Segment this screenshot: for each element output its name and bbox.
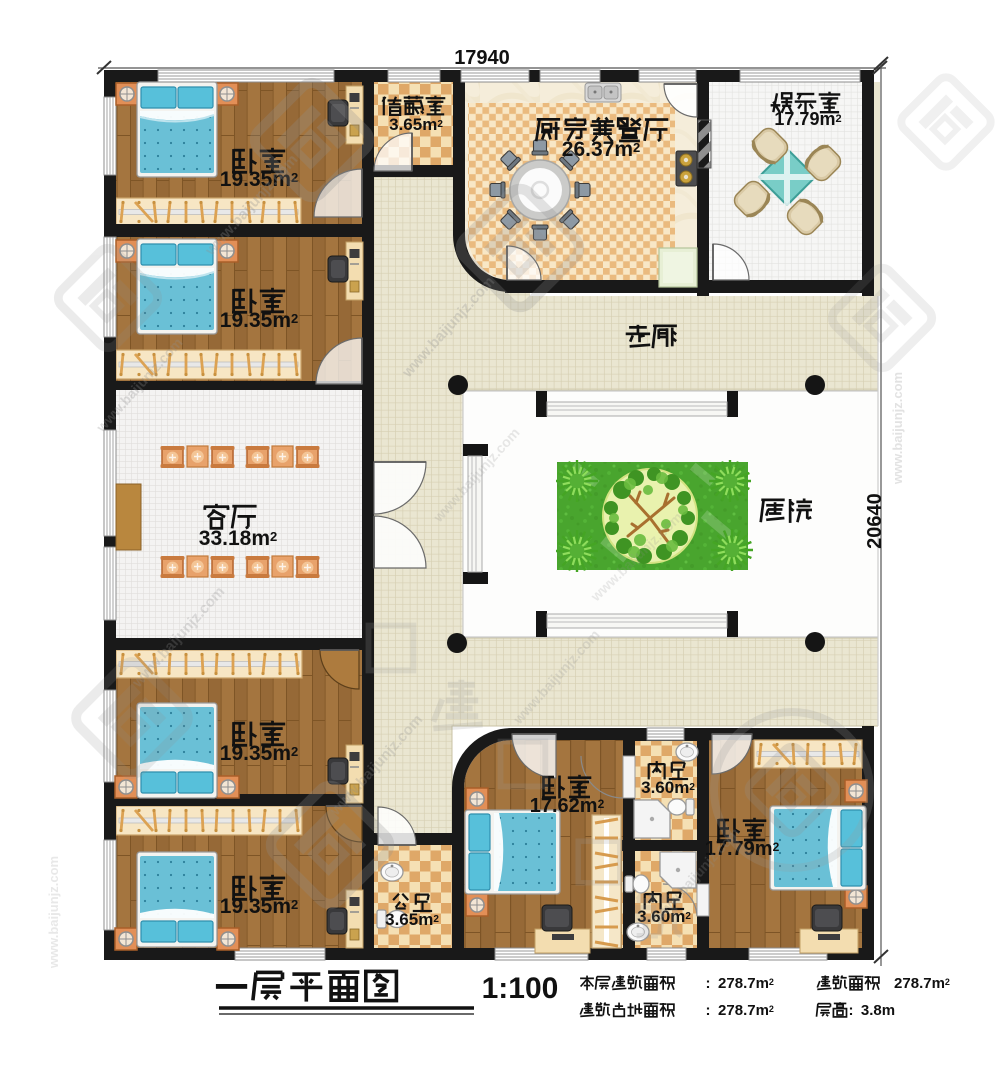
- svg-text:17940: 17940: [454, 47, 510, 69]
- svg-text:33.18m2: 33.18m2: [199, 527, 277, 550]
- svg-text:20640: 20640: [864, 493, 886, 549]
- svg-text::: :: [706, 1002, 711, 1019]
- svg-text:3.65m2: 3.65m2: [385, 910, 439, 929]
- svg-text::: :: [849, 1002, 854, 1019]
- svg-text:19.35m2: 19.35m2: [220, 742, 298, 765]
- svg-text:278.7m2: 278.7m2: [718, 1002, 774, 1019]
- svg-text:19.35m2: 19.35m2: [220, 309, 298, 332]
- svg-text:3.8m: 3.8m: [861, 1002, 895, 1019]
- svg-text:17.62m2: 17.62m2: [530, 795, 605, 817]
- svg-text:3.65m2: 3.65m2: [389, 115, 443, 134]
- svg-text::: :: [706, 975, 711, 992]
- svg-text:www.baijunjz.com: www.baijunjz.com: [890, 372, 905, 485]
- svg-text:1:100: 1:100: [482, 972, 559, 1005]
- svg-text:17.79m2: 17.79m2: [774, 109, 841, 129]
- svg-text:278.7m2: 278.7m2: [894, 975, 950, 992]
- svg-text:www.baijunjz.com: www.baijunjz.com: [46, 856, 61, 969]
- svg-text:19.35m2: 19.35m2: [220, 895, 298, 918]
- svg-text:3.60m2: 3.60m2: [641, 778, 695, 797]
- svg-text:278.7m2: 278.7m2: [718, 975, 774, 992]
- svg-text:26.37m2: 26.37m2: [562, 138, 640, 161]
